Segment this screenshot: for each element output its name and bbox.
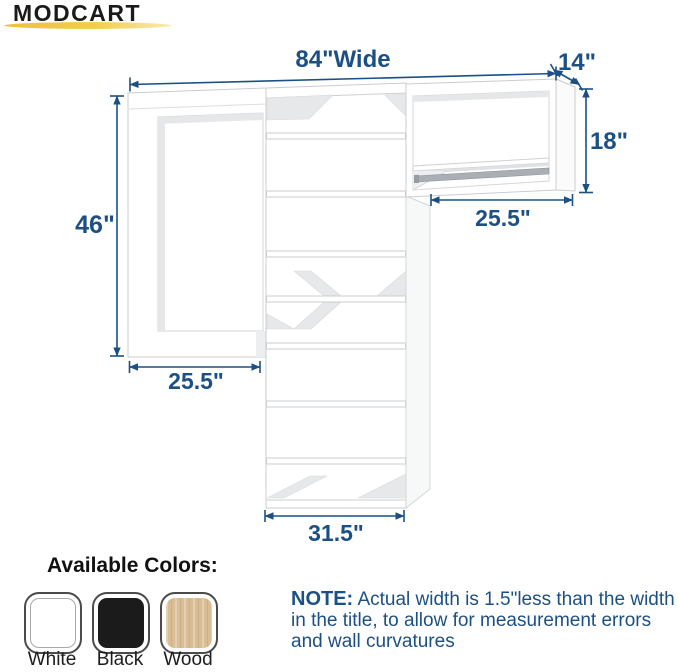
label-depth: 14"	[558, 49, 596, 76]
label-left-width: 25.5"	[168, 368, 224, 394]
note-line-2: in the title, to allow for measurement e…	[291, 610, 675, 631]
swatch-black-fill	[98, 598, 144, 648]
label-hang-width: 25.5"	[475, 205, 531, 231]
left-hanging-section	[128, 88, 266, 357]
label-tower-width: 31.5"	[308, 520, 364, 546]
swatch-label-wood: Wood	[146, 649, 230, 671]
swatch-wood-fill	[166, 598, 212, 648]
note-text-1: Actual width is 1.5"less than the width	[357, 589, 674, 610]
label-total-width: 84"Wide	[295, 46, 390, 73]
right-hanging-section	[406, 79, 575, 197]
swatch-wood	[160, 592, 218, 654]
note: NOTE: Actual width is 1.5"less than the …	[291, 589, 675, 652]
note-label: NOTE:	[291, 588, 353, 610]
closet-diagram: 84"Wide 14" 18" 25.5" 46" 25.5" 31.5"	[0, 0, 679, 560]
note-line-1: NOTE: Actual width is 1.5"less than the …	[291, 589, 675, 610]
label-hang-height: 18"	[590, 128, 628, 155]
swatch-white	[24, 592, 82, 654]
available-colors-heading: Available Colors:	[47, 554, 218, 578]
shelf-tower	[266, 83, 430, 508]
note-line-3: and wall curvatures	[291, 631, 675, 652]
swatch-black	[92, 592, 150, 654]
label-left-height: 46"	[75, 211, 115, 239]
swatch-white-fill	[30, 598, 76, 648]
